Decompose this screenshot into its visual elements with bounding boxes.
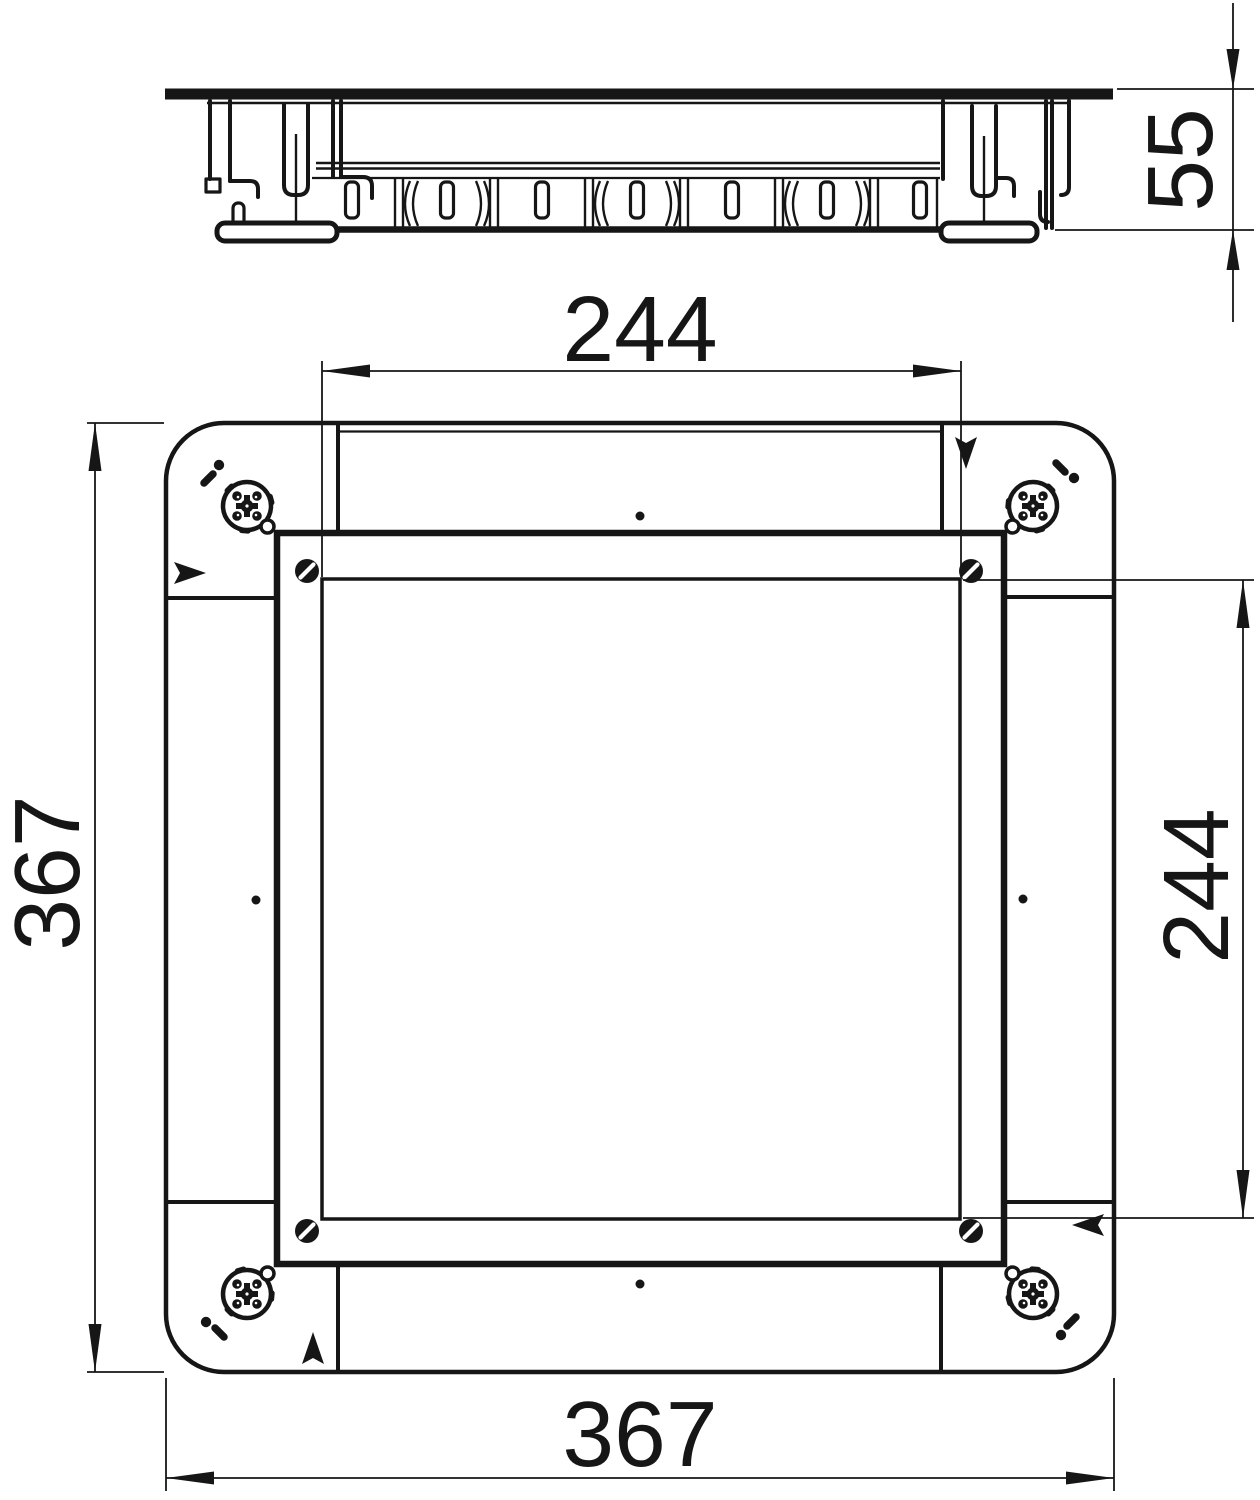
orientation-arrow-down xyxy=(955,437,977,469)
corner-fastener-bottom-right xyxy=(1005,1266,1076,1340)
corner-fastener-bottom-left xyxy=(201,1266,275,1337)
dimension-arrow xyxy=(89,1324,102,1372)
frame-screw-bottom-right xyxy=(959,1219,983,1243)
left-foot-hook xyxy=(206,179,220,192)
center-mark-right xyxy=(1019,895,1028,904)
orientation-arrow-right xyxy=(174,562,206,584)
dimension-arrow xyxy=(322,365,370,378)
orientation-arrow-up xyxy=(302,1332,324,1364)
dimension-arrow xyxy=(1227,49,1240,89)
mounting-frame-inner-lip xyxy=(322,579,960,1219)
dimension-height-55: 55 xyxy=(1055,3,1254,322)
dimension-label-outer-width: 367 xyxy=(562,1382,717,1486)
right-foot xyxy=(941,223,1037,241)
side-slotted-rail xyxy=(312,178,941,230)
dimension-label-inner-height: 244 xyxy=(1144,808,1248,963)
dimension-label-outer-height: 367 xyxy=(0,795,99,950)
left-foot xyxy=(217,223,337,241)
dimension-arrow xyxy=(89,423,102,471)
center-mark-top xyxy=(636,512,645,521)
frame-screw-bottom-left xyxy=(295,1219,319,1243)
drawing-sheet: 55 xyxy=(0,0,1260,1500)
corner-fastener-top-left xyxy=(204,460,275,534)
plan-view xyxy=(166,423,1114,1372)
side-view xyxy=(165,94,1113,241)
technical-drawing-canvas: 55 xyxy=(0,0,1260,1500)
dimension-arrow xyxy=(166,1472,214,1485)
side-right-clip-assembly xyxy=(941,101,1069,241)
rail-slots xyxy=(346,182,927,218)
center-mark-bottom xyxy=(636,1280,645,1289)
dimension-outer-width-367: 367 xyxy=(166,1378,1114,1491)
frame-screw-top-left xyxy=(295,559,319,583)
rail-dividers xyxy=(395,179,937,227)
dimension-label-inner-width: 244 xyxy=(562,277,717,381)
dimension-label-height: 55 xyxy=(1128,108,1232,211)
mounting-frame-outer xyxy=(277,533,1004,1264)
side-left-clip-assembly xyxy=(206,101,372,241)
center-mark-left xyxy=(252,896,261,905)
dimension-arrow xyxy=(913,365,961,378)
corner-fastener-top-right xyxy=(1005,463,1079,534)
dimension-arrow xyxy=(1237,580,1250,628)
dimension-outer-height-367: 367 xyxy=(0,423,164,1372)
dimension-arrow xyxy=(1066,1472,1114,1485)
dimension-arrow xyxy=(1237,1170,1250,1218)
dimension-arrow xyxy=(1227,230,1240,270)
